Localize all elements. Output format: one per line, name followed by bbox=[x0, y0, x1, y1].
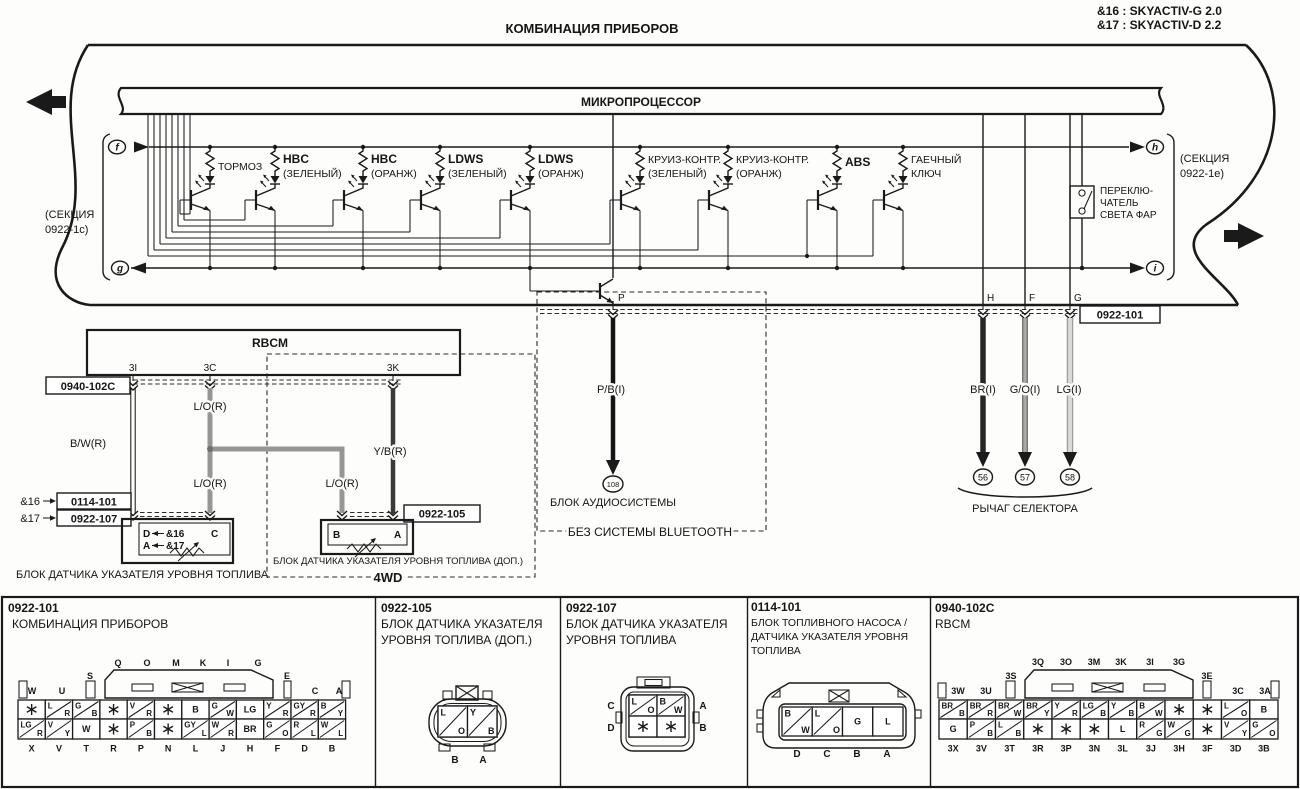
wire-code: L bbox=[815, 709, 821, 719]
pin-cell: LO bbox=[1222, 700, 1250, 719]
ref-0922-105: 0922-105 bbox=[419, 509, 466, 521]
option-box-4wd bbox=[267, 354, 535, 577]
sender2-pin-b: B bbox=[333, 530, 340, 541]
headlight-switch-label-2: ЧАТЕЛЬ bbox=[1100, 198, 1139, 209]
wire-code: O bbox=[1269, 729, 1275, 738]
wire-code: O bbox=[1241, 709, 1247, 718]
wire-label-go: G/O(I) bbox=[1010, 384, 1041, 396]
wire-label-bw: B/W(R) bbox=[70, 438, 106, 450]
wire-code: P bbox=[970, 721, 976, 730]
panel-grid-0922-101: WUSQOMKIGECALRGBVRBGWLGYRGYRBYLGRVYWPBGY… bbox=[18, 658, 350, 754]
wire-code: L bbox=[441, 708, 447, 718]
wire-code: Y bbox=[338, 709, 344, 718]
pin-cell: G bbox=[843, 707, 873, 736]
pin-cell: LGB bbox=[1080, 700, 1108, 719]
pin-cell: GYL bbox=[182, 719, 209, 739]
header-letter: 3O bbox=[1060, 657, 1072, 667]
pin-cell: BW bbox=[1137, 700, 1165, 719]
wire-code: BR bbox=[942, 702, 954, 711]
wire-code: R bbox=[294, 721, 300, 730]
wire-code: G bbox=[1185, 729, 1191, 738]
section-arrow-right-icon bbox=[1224, 223, 1264, 249]
pin-cell: BR bbox=[236, 719, 263, 739]
wire-code: V bbox=[48, 721, 54, 730]
pin-letter: 3V bbox=[976, 744, 987, 754]
wire-code: B bbox=[146, 729, 152, 738]
pin-cell bbox=[100, 700, 127, 719]
panel4-name-2: ДАТЧИКА УКАЗАТЕЛЯ УРОВНЯ bbox=[751, 631, 908, 643]
section-left-line1: (СЕКЦИЯ bbox=[45, 209, 94, 221]
pin-letter: D bbox=[301, 744, 308, 754]
ref-amp16: &16 bbox=[20, 496, 40, 508]
wire-code: BR bbox=[1026, 702, 1038, 711]
header-letter: 3U bbox=[980, 686, 992, 696]
pin-cell: LB bbox=[996, 719, 1024, 739]
pin-cell bbox=[657, 716, 685, 737]
wire-code: G bbox=[950, 724, 957, 734]
pin-cell: LG bbox=[236, 700, 263, 719]
pin-cell: BRW bbox=[996, 700, 1024, 719]
pin-cell bbox=[1080, 719, 1108, 739]
header-letter: 3G bbox=[1173, 657, 1185, 667]
rbcm-title: RBCM bbox=[252, 336, 288, 350]
wire-code: BR bbox=[970, 702, 982, 711]
selector-label: РЫЧАГ СЕЛЕКТОРА bbox=[972, 503, 1078, 515]
indicator-name: ABS bbox=[845, 155, 870, 169]
schematic-svg: &16 : SKYACTIV-G 2.0 &17 : SKYACTIV-D 2.… bbox=[0, 0, 1300, 789]
pin-cell: PB bbox=[967, 719, 995, 739]
pin-letter: H bbox=[247, 744, 254, 754]
wire-code: V bbox=[130, 702, 136, 711]
wire-code: R bbox=[310, 709, 316, 718]
pin-cell bbox=[155, 700, 182, 719]
selector-terminal-56: 56 bbox=[978, 473, 988, 483]
panel4-name-1: БЛОК ТОПЛИВНОГО НАСОСА / bbox=[751, 617, 907, 629]
wire-label-lo-1: L/O(R) bbox=[194, 401, 227, 413]
indicator-sub: (ОРАНЖ) bbox=[538, 168, 584, 180]
wire-code: Y bbox=[1111, 702, 1117, 711]
wire-code: W bbox=[1168, 721, 1176, 730]
sender1-pin-d: D bbox=[143, 529, 150, 540]
panel4-id: 0114-101 bbox=[751, 600, 801, 614]
section-left-line2: 0922-1c) bbox=[45, 224, 88, 236]
panel3-pin-d: D bbox=[607, 723, 614, 734]
header-letter: O bbox=[143, 658, 150, 668]
pin-cell: WL bbox=[318, 719, 345, 739]
pin-cell: BW bbox=[782, 707, 812, 736]
wire-label-yb: Y/B(R) bbox=[374, 446, 407, 458]
wire-label-lo-2: L/O(R) bbox=[194, 478, 227, 490]
wire-code: L bbox=[632, 697, 638, 707]
wire-code: O bbox=[833, 725, 840, 735]
option-box-no-bluetooth bbox=[537, 292, 766, 531]
wire-code: Y bbox=[1055, 702, 1061, 711]
wire-code: L bbox=[885, 717, 891, 727]
pin-cell: BRY bbox=[1024, 700, 1052, 719]
pin-cell: LGR bbox=[18, 719, 45, 739]
audio-transistor bbox=[530, 268, 613, 305]
indicator-name: LDWS bbox=[538, 152, 573, 166]
indicator-sub: (ЗЕЛЕНЫЙ) bbox=[283, 167, 342, 180]
header-letter: 3S bbox=[1005, 671, 1016, 681]
pin-letter: C bbox=[823, 749, 830, 760]
pin-cell: GB bbox=[73, 700, 100, 719]
indicator-sub: КЛЮЧ bbox=[911, 168, 941, 180]
panel3-pin-c: C bbox=[607, 701, 614, 712]
variant-note-17: &17 : SKYACTIV-D 2.2 bbox=[1097, 18, 1222, 32]
wire-code: GY bbox=[184, 721, 196, 730]
indicator-branches: ТОРМОЗHBC(ЗЕЛЕНЫЙ)HBC(ОРАНЖ)LDWS(ЗЕЛЕНЫЙ… bbox=[180, 145, 961, 270]
pin-letter: 3R bbox=[1032, 744, 1044, 754]
wire-code: Y bbox=[1044, 709, 1050, 718]
option-4wd-label: 4WD bbox=[374, 570, 403, 585]
pin-letter: 3F bbox=[1202, 744, 1213, 754]
pin-cell: LO bbox=[629, 695, 657, 716]
wire-code: B bbox=[1128, 709, 1134, 718]
panel5-connector-housing bbox=[1025, 670, 1193, 698]
indicator-name: HBC bbox=[283, 152, 309, 166]
pin-letter: 3D bbox=[1230, 744, 1242, 754]
pin-cell: GO bbox=[1250, 719, 1278, 739]
wire-code: W bbox=[321, 721, 329, 730]
pin-cell: RG bbox=[1137, 719, 1165, 739]
panel3-name-1: БЛОК ДАТЧИКА УКАЗАТЕЛЯ bbox=[566, 617, 728, 631]
wire-code: P bbox=[130, 721, 136, 730]
pin-cell bbox=[1193, 700, 1221, 719]
microprocessor-label: МИКРОПРОЦЕССОР bbox=[581, 95, 701, 109]
panel2-name-2: УРОВНЯ ТОПЛИВА (ДОП.) bbox=[381, 633, 532, 647]
pin-letter: R bbox=[110, 744, 117, 754]
pin-cell: GW bbox=[209, 700, 236, 719]
pin-cell: L bbox=[1109, 719, 1137, 739]
pin-letter: V bbox=[56, 744, 62, 754]
wire-label-lo-3: L/O(R) bbox=[326, 478, 359, 490]
wire-code: R bbox=[64, 709, 70, 718]
wire-code: R bbox=[987, 709, 993, 718]
pin-cell: LO bbox=[812, 707, 842, 736]
pin-cell: YB bbox=[1109, 700, 1137, 719]
wire-code: O bbox=[647, 705, 654, 715]
pin-cell: PB bbox=[127, 719, 154, 739]
header-letter: 3W bbox=[951, 686, 965, 696]
pin-cell bbox=[18, 700, 45, 719]
pin-letter: 3T bbox=[1004, 744, 1015, 754]
indicator-branch-4: LDWS(ЗЕЛЕНЫЙ) bbox=[410, 145, 507, 270]
wire-code: G bbox=[1156, 729, 1162, 738]
pin-cell: W bbox=[73, 719, 100, 739]
header-letter: Q bbox=[114, 658, 121, 668]
pin-cell bbox=[100, 719, 127, 739]
header-letter: G bbox=[254, 658, 261, 668]
pin-letter: 3B bbox=[1258, 744, 1270, 754]
wire-code: B bbox=[1261, 705, 1268, 715]
wire-code: B bbox=[321, 702, 327, 711]
port-f: f bbox=[115, 143, 120, 154]
wire-code: R bbox=[228, 729, 234, 738]
pin-cell: BRB bbox=[939, 700, 967, 719]
indicator-branch-1: ТОРМОЗ bbox=[180, 145, 262, 270]
wire-label-lg: LG(I) bbox=[1056, 384, 1081, 396]
sender1-pin-a: A bbox=[143, 541, 150, 552]
port-h: h bbox=[1152, 143, 1158, 154]
wire-code: R bbox=[1072, 709, 1078, 718]
wire-code: L bbox=[202, 729, 207, 738]
pin-cell: VY bbox=[45, 719, 72, 739]
indicator-branch-8: ABS bbox=[807, 145, 870, 270]
wire-code: R bbox=[283, 709, 289, 718]
wire-code: G bbox=[212, 702, 218, 711]
headlight-switch bbox=[1070, 186, 1094, 218]
panel2-pin-a: A bbox=[479, 755, 486, 766]
indicator-name: ГАЕЧНЫЙ bbox=[911, 153, 961, 166]
wire-label-br: BR(I) bbox=[970, 384, 996, 396]
wire-code: R bbox=[1139, 721, 1145, 730]
section-right-line1: (СЕКЦИЯ bbox=[1180, 153, 1229, 165]
pin-cell: B bbox=[1250, 700, 1278, 719]
pin-letter: B bbox=[853, 749, 860, 760]
pin-P: P bbox=[618, 293, 625, 304]
indicator-branch-9: ГАЕЧНЫЙКЛЮЧ bbox=[873, 145, 961, 270]
header-letter: A bbox=[336, 686, 343, 696]
wire-code: R bbox=[146, 709, 152, 718]
sender2-pin-a: A bbox=[394, 530, 401, 541]
wire-code: LG bbox=[1083, 702, 1094, 711]
wire-code: O bbox=[458, 726, 465, 736]
wire-code: L bbox=[998, 721, 1003, 730]
wire-code: W bbox=[226, 709, 234, 718]
header-letter: 3K bbox=[1115, 657, 1127, 667]
vertical-drops bbox=[613, 114, 1084, 305]
panel2-name-1: БЛОК ДАТЧИКА УКАЗАТЕЛЯ bbox=[381, 617, 543, 631]
audio-label: БЛОК АУДИОСИСТЕМЫ bbox=[550, 497, 676, 509]
wire-code: L bbox=[48, 702, 53, 711]
page-title: КОМБИНАЦИЯ ПРИБОРОВ bbox=[506, 21, 679, 36]
indicator-sub: (ЗЕЛЕНЫЙ) bbox=[648, 167, 707, 180]
header-letter: I bbox=[227, 658, 230, 668]
wire-code: O bbox=[282, 729, 288, 738]
pin-cell bbox=[1165, 700, 1193, 719]
wire-code: B bbox=[660, 697, 667, 707]
sender1-map16: &16 bbox=[166, 529, 185, 540]
indicator-branch-6: КРУИЗ-КОНТР.(ЗЕЛЕНЫЙ) bbox=[610, 145, 721, 270]
panel5-name: RBCM bbox=[935, 617, 970, 631]
pin-cell: VY bbox=[1222, 719, 1250, 739]
variant-note-16: &16 : SKYACTIV-G 2.0 bbox=[1097, 4, 1222, 18]
indicator-sub: (ОРАНЖ) bbox=[371, 168, 417, 180]
rbcm-pin-3C: 3C bbox=[204, 363, 217, 374]
header-letter: 3C bbox=[1232, 686, 1244, 696]
pin-H: H bbox=[987, 293, 994, 304]
wire-lo bbox=[207, 388, 342, 513]
pin-letter: P bbox=[138, 744, 144, 754]
wire-code: LG bbox=[244, 705, 257, 715]
pin-cell: LO bbox=[438, 706, 468, 737]
pin-cell: YR bbox=[264, 700, 291, 719]
indicator-branch-5: LDWS(ОРАНЖ) bbox=[500, 145, 584, 270]
selector-terminal-57: 57 bbox=[1020, 473, 1030, 483]
wire-code: LG bbox=[21, 721, 32, 730]
wire-code: G bbox=[1252, 721, 1258, 730]
pin-letter: T bbox=[84, 744, 90, 754]
panel1-name: КОМБИНАЦИЯ ПРИБОРОВ bbox=[12, 617, 168, 631]
wire-code: B bbox=[1100, 709, 1106, 718]
selector-terminal-58: 58 bbox=[1065, 473, 1075, 483]
rbcm-pin-3I: 3I bbox=[129, 363, 137, 374]
panel2-id: 0922-105 bbox=[381, 601, 432, 615]
headlight-switch-label-1: ПЕРЕКЛЮ- bbox=[1100, 186, 1153, 197]
pin-cell: LR bbox=[45, 700, 72, 719]
panel-pin-grids: WUSQOMKIGECALRGBVRBGWLGYRGYRBYLGRVYWPBGY… bbox=[18, 657, 1279, 760]
wire-code: R bbox=[37, 729, 43, 738]
wire-code: Y bbox=[470, 708, 476, 718]
pin-letter: 3H bbox=[1173, 744, 1185, 754]
wire-code: B bbox=[92, 709, 98, 718]
wire-code: W bbox=[674, 705, 683, 715]
indicator-name: КРУИЗ-КОНТР. bbox=[648, 154, 721, 166]
pin-cell: BW bbox=[657, 695, 685, 716]
wire-code: B bbox=[1015, 729, 1021, 738]
header-letter: U bbox=[59, 686, 66, 696]
panel3-name-2: УРОВНЯ ТОПЛИВА bbox=[566, 633, 676, 647]
wire-code: W bbox=[1155, 709, 1163, 718]
wire-code: W bbox=[212, 721, 220, 730]
wire-code: L bbox=[311, 729, 316, 738]
indicator-name: LDWS bbox=[448, 152, 483, 166]
pin-cell: WR bbox=[209, 719, 236, 739]
pin-cell bbox=[1193, 719, 1221, 739]
header-letter: M bbox=[172, 658, 180, 668]
panel5-id: 0940-102C bbox=[935, 601, 995, 615]
wire-code: Y bbox=[1242, 729, 1248, 738]
wire-label-pb: P/B(I) bbox=[597, 384, 625, 396]
pin-cell: L bbox=[873, 707, 903, 736]
pin-cell bbox=[629, 716, 657, 737]
pin-cell: RL bbox=[291, 719, 318, 739]
wire-code: BR bbox=[998, 702, 1010, 711]
header-letter: W bbox=[28, 686, 37, 696]
pin-cell: G bbox=[939, 719, 967, 739]
pin-cell bbox=[155, 719, 182, 739]
ref-amp17: &17 bbox=[20, 513, 40, 525]
section-arrow-left-icon bbox=[26, 89, 66, 115]
wire-code: B bbox=[959, 709, 965, 718]
indicator-name: HBC bbox=[371, 152, 397, 166]
wire-code: B bbox=[785, 709, 792, 719]
header-letter: C bbox=[312, 686, 319, 696]
pin-cell bbox=[1052, 719, 1080, 739]
indicator-branch-3: HBC(ОРАНЖ) bbox=[333, 145, 417, 270]
wire-code: Y bbox=[65, 729, 71, 738]
wire-code: BR bbox=[244, 724, 257, 734]
wire-code: W bbox=[801, 725, 810, 735]
indicator-sub: (ОРАНЖ) bbox=[736, 168, 782, 180]
ref-0922-107: 0922-107 bbox=[71, 514, 118, 526]
wire-code: B bbox=[192, 705, 199, 715]
ref-0940-102C: 0940-102C bbox=[61, 381, 115, 393]
pin-letter: F bbox=[275, 744, 281, 754]
sender1-map17: &17 bbox=[166, 541, 185, 552]
ref-0922-101: 0922-101 bbox=[1097, 310, 1144, 322]
indicator-sub: (ЗЕЛЕНЫЙ) bbox=[448, 167, 507, 180]
header-letter: 3Q bbox=[1032, 657, 1044, 667]
sender1-label: БЛОК ДАТЧИКА УКАЗАТЕЛЯ УРОВНЯ ТОПЛИВА bbox=[16, 569, 269, 581]
ref-0114-101: 0114-101 bbox=[71, 497, 117, 509]
pin-cell: BY bbox=[318, 700, 345, 719]
wire-code: L bbox=[1224, 702, 1229, 711]
header-letter: 3M bbox=[1088, 657, 1101, 667]
header-letter: 3I bbox=[1146, 657, 1154, 667]
pin-letter: 3L bbox=[1117, 744, 1128, 754]
no-bluetooth-label: БЕЗ СИСТЕМЫ BLUETOOTH bbox=[568, 525, 732, 539]
headlight-switch-label-3: СВЕТА ФАР bbox=[1100, 210, 1157, 221]
pin-F: F bbox=[1029, 293, 1035, 304]
pin-letter: J bbox=[220, 744, 225, 754]
pin-letter: 3J bbox=[1146, 744, 1156, 754]
wire-code: G bbox=[75, 702, 81, 711]
panel2-pin-b: B bbox=[451, 755, 458, 766]
pin-letter: B bbox=[329, 744, 336, 754]
panel1-connector-housing bbox=[105, 670, 273, 698]
bus-ladder bbox=[148, 114, 873, 258]
panel3-pin-b: B bbox=[699, 723, 706, 734]
header-letter: S bbox=[87, 671, 93, 681]
wire-code: L bbox=[338, 729, 343, 738]
pin-letter: D bbox=[793, 749, 800, 760]
port-g: g bbox=[116, 264, 123, 275]
pin-cell: WG bbox=[1165, 719, 1193, 739]
wire-code: G bbox=[854, 717, 861, 727]
pin-G: G bbox=[1074, 293, 1082, 304]
indicator-name: КРУИЗ-КОНТР. bbox=[736, 154, 809, 166]
pin-letter: 3X bbox=[948, 744, 959, 754]
pin-cell: YR bbox=[1052, 700, 1080, 719]
panel4-name-3: ТОПЛИВА bbox=[751, 645, 801, 657]
panel3-id: 0922-107 bbox=[566, 601, 617, 615]
header-letter: K bbox=[200, 658, 207, 668]
sender1-pin-c: C bbox=[211, 529, 218, 540]
pin-letter: 3P bbox=[1061, 744, 1072, 754]
pin-cell: YB bbox=[468, 706, 498, 737]
indicator-name: ТОРМОЗ bbox=[218, 161, 262, 173]
header-letter: 3E bbox=[1201, 671, 1212, 681]
wire-code: W bbox=[82, 724, 91, 734]
sender2-label: БЛОК ДАТЧИКА УКАЗАТЕЛЯ УРОВНЯ ТОПЛИВА (Д… bbox=[273, 556, 523, 567]
wire-code: G bbox=[266, 721, 272, 730]
pin-cell bbox=[1024, 719, 1052, 739]
pin-cell: B bbox=[182, 700, 209, 719]
pin-cell: GYR bbox=[291, 700, 318, 719]
panel-grid-0940-102C: 3W3U3S3Q3O3M3K3I3G3E3C3ABRBBRRBRWBRYYRLG… bbox=[938, 657, 1279, 754]
header-letter: 3A bbox=[1259, 686, 1271, 696]
port-i: i bbox=[1154, 264, 1157, 275]
wire-code: L bbox=[1120, 724, 1126, 734]
wire-code: B bbox=[488, 726, 495, 736]
pin-letter: 3N bbox=[1089, 744, 1101, 754]
pin-letter: N bbox=[165, 744, 172, 754]
pin-letter: X bbox=[29, 744, 35, 754]
section-right-line2: 0922-1e) bbox=[1180, 168, 1224, 180]
wire-code: Y bbox=[266, 702, 272, 711]
panel1-id: 0922-101 bbox=[8, 601, 59, 615]
wire-code: GY bbox=[294, 702, 306, 711]
wire-code: W bbox=[1014, 709, 1022, 718]
rbcm-pin-3K: 3K bbox=[387, 363, 400, 374]
pin-cell: GO bbox=[264, 719, 291, 739]
audio-terminal-number: 108 bbox=[607, 480, 620, 489]
wire-code: V bbox=[1224, 721, 1230, 730]
panel3-pin-a: A bbox=[699, 701, 706, 712]
pin-cell: BRR bbox=[967, 700, 995, 719]
